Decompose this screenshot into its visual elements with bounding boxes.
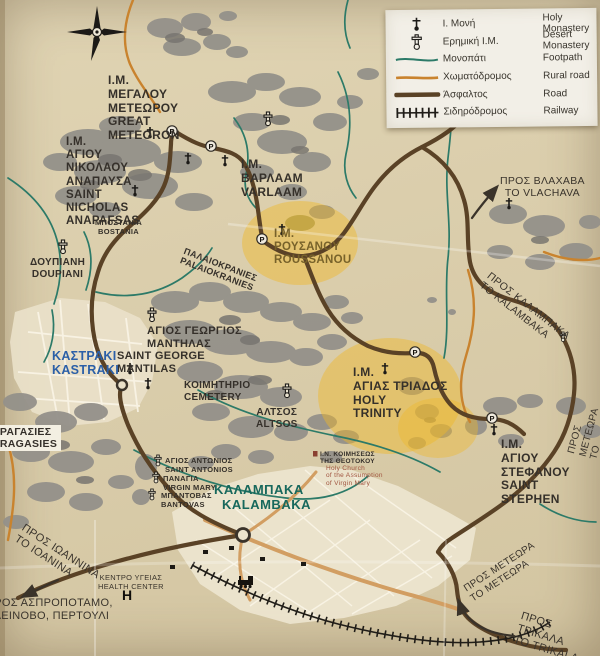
label-en: KASTRAKI [52, 363, 119, 377]
label-holy-trinity: Ι.Μ. ΑΓΙΑΣ ΤΡΙΑΔΟΣ HOLY TRINITY [353, 366, 448, 421]
legend-label-gr: Άσφαλτος [443, 88, 543, 100]
kalambaka-roundabout [237, 529, 250, 542]
legend-label-en: Desert Monastery [543, 29, 593, 52]
label-en: CEMETERY [184, 392, 250, 404]
meteora-map: P P P P P H Ι.Μ. ΜΕΓΑΛΟΥ ΜΕΤΕΩΡΟΥ GREAT … [0, 0, 600, 656]
label-altsos: ΑΛΤΣΟΣ ALTSOS [256, 407, 298, 430]
monastery-cross-icon [222, 155, 228, 166]
label-gr: Ι.Μ. ΒΑΡΛΑΑΜ [241, 158, 303, 186]
label-en: ALTSOS [256, 419, 298, 431]
desert-monastery-icon [59, 240, 67, 254]
label-en: DRAGASIES [0, 438, 57, 450]
holy-monastery-icon [390, 16, 442, 33]
legend-label-en: Rural road [543, 70, 593, 82]
label-gr: Ι.Μ. ΑΓΙΑΣ ΤΡΙΑΔΟΣ [353, 366, 448, 394]
label-gr: Ι.Μ. ΡΟΥΣΑΝΟΥ [274, 228, 351, 254]
legend-row-rural-road: Χωματόδρομος Rural road [391, 67, 593, 87]
svg-text:P: P [489, 414, 494, 423]
map-legend: Ι. Μονή Holy Monastery Ερημική Ι.Μ. Dese… [385, 8, 597, 128]
footpath-line-icon [391, 54, 443, 65]
svg-text:P: P [259, 235, 264, 244]
label-assumption-church: Ι.Ν. ΚΟΙΜΗΣΕΩΣ ΤΗΣ ΘΕΟΤΟΚΟΥ Holy Church … [320, 451, 383, 487]
label-gr: Ι.Μ. ΑΓΙΟΥ ΝΙΚΟΛΑΟΥ ΑΝΑΠΑΥΣΑ [66, 136, 139, 189]
kastraki-roundabout [117, 380, 127, 390]
arrow-to-ioannina [24, 580, 58, 596]
label-en: ROUSSANOU [274, 254, 351, 267]
svg-text:P: P [412, 348, 417, 357]
compass-rose [67, 6, 127, 61]
label-health-center: ΚΕΝΤΡΟ ΥΓΕΙΑΣ HEALTH CENTER [98, 574, 164, 591]
parking-icon: P [410, 347, 420, 357]
label-cemetery: ΚΟΙΜΗΤΗΡΙΟ CEMETERY [184, 380, 250, 403]
parking-icon: P [257, 234, 267, 244]
label-gr: ΚΑΛΑΜΠΑΚΑ [214, 483, 311, 498]
legend-row-desert-monastery: Ερημική Ι.Μ. Desert Monastery [391, 32, 593, 52]
label-en: VARLAAM [241, 186, 303, 200]
label-varlaam: Ι.Μ. ΒΑΡΛΑΑΜ VARLAAM [241, 158, 303, 199]
label-panagia: ΠΑΝΑΓΙΑ VIRGIN MARY [163, 475, 216, 492]
desert-monastery-icon [391, 33, 443, 51]
label-great-meteoron: Ι.Μ. ΜΕΓΑΛΟΥ ΜΕΤΕΩΡΟΥ GREAT METEORON [108, 74, 180, 143]
label-en: BOSTANIA [95, 228, 142, 237]
railway-line-icon [391, 106, 443, 119]
label-gr: ΔΡΑΓΑΣΙΕΣ [0, 426, 57, 438]
label-roussanou: Ι.Μ. ΡΟΥΣΑΝΟΥ ROUSSANOU [274, 228, 351, 268]
label-st-antonios: ΑΓΙΟΣ ΑΝΤΩΝΙΟΣ SAINT ANTONIOS [165, 457, 233, 474]
label-en: HEALTH CENTER [98, 583, 164, 592]
label-en: SAINT GEORGE MANTILAS [117, 350, 242, 375]
church-marker-icon [313, 451, 318, 457]
label-en: HOLY TRINITY [353, 394, 448, 422]
label-gr: ΠΡΟΣ ΒΛΑΧΑΒΑ [500, 175, 585, 187]
label-kalambaka: ΚΑΛΑΜΠΑΚΑ KALAMBAKA [214, 483, 311, 513]
label-gr: ΚΑΣΤΡΑΚΙ [52, 349, 119, 363]
label-en: BANTOVAS [161, 501, 212, 510]
label-st-stephen: Ι.Μ. ΑΓΙΟΥ ΣΤΕΦΑΝΟΥ SAINT STEPHEN [501, 438, 570, 507]
label-kastraki: ΚΑΣΤΡΑΚΙ KASTRAKI [52, 349, 119, 378]
svg-text:P: P [208, 142, 213, 151]
parking-icon: P [487, 413, 497, 423]
legend-label-gr: Ερημική Ι.Μ. [443, 35, 543, 47]
label-en: SAINT STEPHEN [501, 479, 570, 507]
label-dragasies: ΔΡΑΓΑΣΙΕΣ DRAGASIES [0, 425, 61, 451]
label-to-aspropotamo: ΠΡΟΣ ΑΣΠΡΟΠΟΤΑΜΟ, ΚΛΕΙΝΟΒΟ, ΠΕΡΤΟΥΛΙ [0, 597, 113, 622]
monastery-cross-icon [491, 424, 497, 435]
label-gr: ΑΓΙΟΣ ΓΕΩΡΓΙΟΣ ΜΑΝΤΗΛΑΣ [117, 325, 242, 350]
label-gr: ΚΟΙΜΗΤΗΡΙΟ [184, 380, 250, 392]
label-gr: ΠΡΟΣ ΑΣΠΡΟΠΟΤΑΜΟ, ΚΛΕΙΝΟΒΟ, ΠΕΡΤΟΥΛΙ [0, 597, 113, 622]
road-line-icon [391, 90, 443, 101]
desert-monastery-icon [148, 308, 156, 322]
label-gr: Ι.Μ. ΑΓΙΟΥ ΣΤΕΦΑΝΟΥ [501, 438, 570, 479]
legend-label-en: Footpath [543, 52, 593, 64]
label-gr: ΔΟΥΠΙΑΝΗ [30, 257, 85, 269]
label-gr: Ι.Μ. ΜΕΓΑΛΟΥ ΜΕΤΕΩΡΟΥ [108, 74, 180, 115]
legend-row-footpath: Μονοπάτι Footpath [391, 49, 593, 69]
label-st-nicholas: Ι.Μ. ΑΓΙΟΥ ΝΙΚΟΛΑΟΥ ΑΝΑΠΑΥΣΑ SAINT NICHO… [66, 136, 139, 229]
label-st-george: ΑΓΙΟΣ ΓΕΩΡΓΙΟΣ ΜΑΝΤΗΛΑΣ SAINT GEORGE MAN… [117, 325, 242, 376]
page-edge [0, 0, 5, 656]
label-bostania: ΜΠΟΣΤΑΝΙΑ BOSTANIA [95, 219, 142, 236]
legend-label-en: Railway [543, 105, 593, 117]
label-en: SAINT ANTONIOS [165, 466, 233, 475]
legend-row-railway: Σιδηρόδρομος Railway [391, 102, 593, 122]
label-en: KALAMBAKA [214, 498, 311, 513]
legend-label-en: Road [543, 88, 593, 100]
legend-label-gr: Σιδηρόδρομος [443, 106, 543, 118]
label-gr: ΑΛΤΣΟΣ [256, 407, 298, 419]
label-to-vlachava: ΠΡΟΣ ΒΛΑΧΑΒΑ TO VLACHAVA [500, 175, 585, 199]
legend-label-gr: Ι. Μονή [442, 18, 542, 30]
legend-label-gr: Χωματόδρομος [443, 71, 543, 83]
legend-row-road: Άσφαλτος Road [391, 84, 593, 104]
desert-monastery-icon [149, 489, 155, 500]
parking-icon: P [206, 141, 216, 151]
label-bantovas: ΜΠΑΝΤΟΒΑΣ BANTOVAS [161, 492, 212, 509]
label-en: DOUPIANI [30, 269, 85, 281]
label-en: TO VLACHAVA [500, 187, 585, 199]
rural-road-line-icon [391, 72, 443, 83]
label-gr: Ι.Ν. ΚΟΙΜΗΣΕΩΣ ΤΗΣ ΘΕΟΤΟΚΟΥ [320, 451, 383, 465]
label-en: Holy Church of the Assumption of Virgin … [320, 465, 383, 486]
legend-label-gr: Μονοπάτι [443, 53, 543, 65]
label-doupiani: ΔΟΥΠΙΑΝΗ DOUPIANI [30, 257, 85, 280]
